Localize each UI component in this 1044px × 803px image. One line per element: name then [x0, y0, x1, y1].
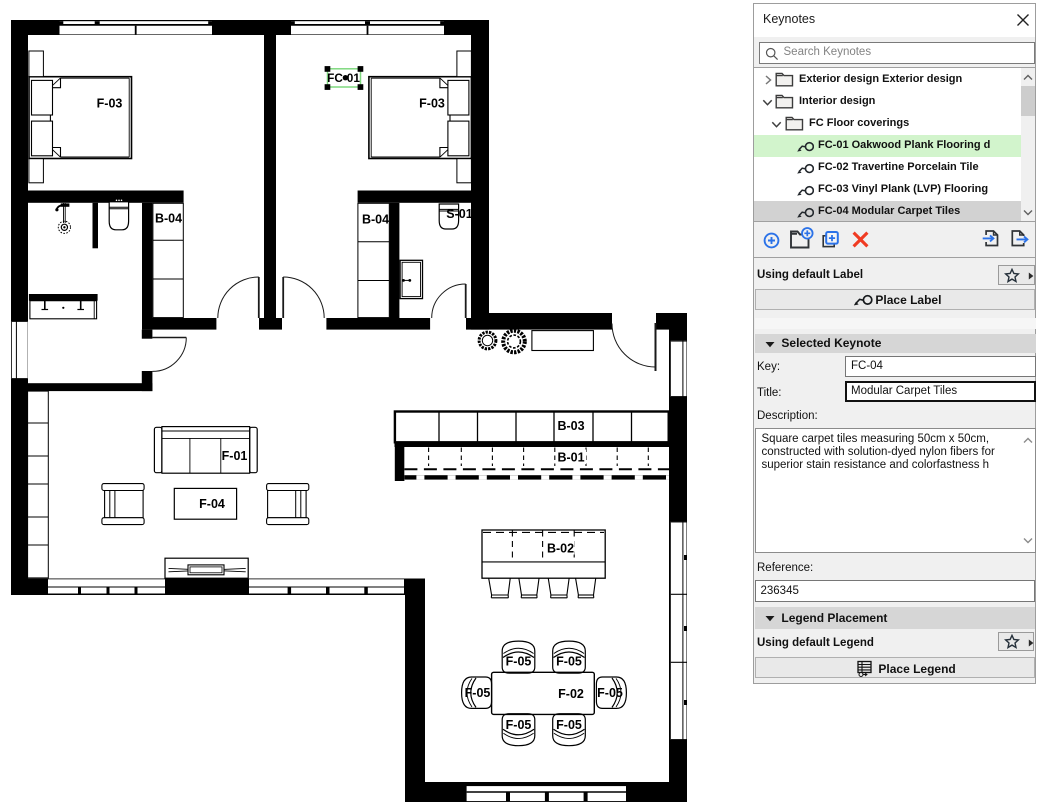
svg-text:F-05: F-05 [556, 718, 582, 732]
svg-text:F-03: F-03 [419, 97, 445, 111]
svg-text:F-05: F-05 [506, 718, 532, 732]
svg-text:B-01: B-01 [557, 451, 584, 465]
svg-text:F-05: F-05 [556, 655, 582, 669]
svg-text:S-01: S-01 [446, 207, 472, 221]
svg-text:F-01: F-01 [222, 449, 248, 463]
svg-text:F-05: F-05 [465, 686, 491, 700]
svg-text:F-04: F-04 [199, 497, 225, 511]
svg-text:B-04: B-04 [362, 213, 389, 227]
svg-text:F-03: F-03 [97, 97, 123, 111]
svg-text:F-05: F-05 [597, 686, 623, 700]
svg-text:F-02: F-02 [558, 687, 584, 701]
svg-text:B-03: B-03 [557, 419, 584, 433]
svg-text:F-05: F-05 [506, 655, 532, 669]
svg-text:B-04: B-04 [155, 212, 182, 226]
svg-text:B-02: B-02 [547, 542, 574, 556]
